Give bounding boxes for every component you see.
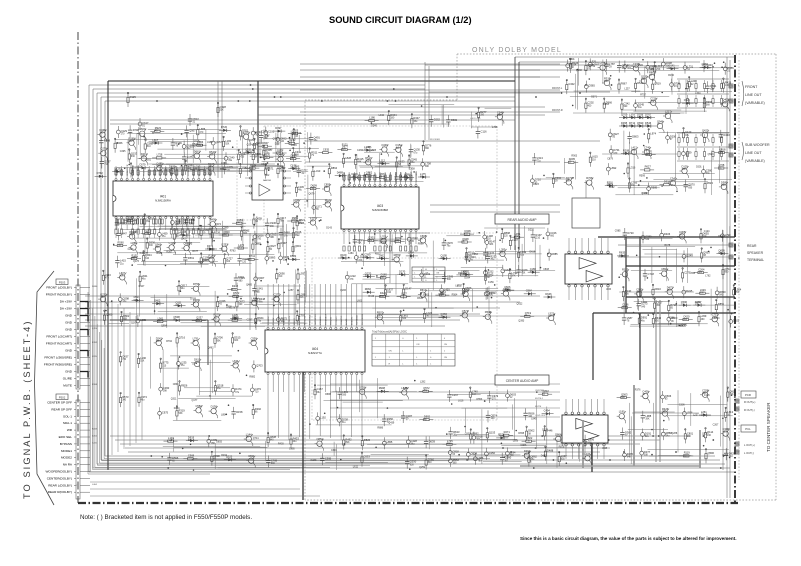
svg-text:82K: 82K xyxy=(234,340,239,342)
svg-text:95K: 95K xyxy=(211,443,216,445)
svg-text:C559: C559 xyxy=(251,337,258,341)
svg-text:C679: C679 xyxy=(139,163,146,167)
svg-text:L634: L634 xyxy=(233,359,239,363)
svg-text:GND: GND xyxy=(65,321,73,325)
svg-text:REAR: REAR xyxy=(747,244,757,248)
svg-text:FRONT R(SCART): FRONT R(SCART) xyxy=(46,342,72,346)
svg-text:L837: L837 xyxy=(387,287,393,291)
svg-text:D853: D853 xyxy=(472,253,478,256)
svg-text:Q473: Q473 xyxy=(488,291,495,295)
svg-text:L447: L447 xyxy=(121,231,127,235)
svg-text:C345: C345 xyxy=(670,177,677,181)
svg-text:C264: C264 xyxy=(698,267,705,271)
svg-text:D395: D395 xyxy=(621,121,628,125)
svg-text:FDFNDAN: FDFNDAN xyxy=(356,315,359,325)
svg-text:R862: R862 xyxy=(472,432,479,436)
svg-text:C859: C859 xyxy=(324,183,331,187)
svg-text:42K: 42K xyxy=(399,274,404,276)
svg-text:C338: C338 xyxy=(702,388,709,392)
svg-text:R146: R146 xyxy=(209,253,216,257)
svg-text:44K: 44K xyxy=(365,276,370,278)
svg-text:DA +29V: DA +29V xyxy=(60,300,73,304)
svg-text:P503: P503 xyxy=(59,281,66,285)
svg-text:L257: L257 xyxy=(624,88,630,91)
svg-text:Q691: Q691 xyxy=(295,244,302,248)
svg-text:C267: C267 xyxy=(713,423,719,426)
svg-text:C192: C192 xyxy=(268,130,275,134)
svg-text:51K: 51K xyxy=(703,236,708,238)
svg-text:LUILTC: LUILTC xyxy=(294,317,296,325)
svg-text:R426: R426 xyxy=(291,144,297,147)
svg-text:L862: L862 xyxy=(402,313,408,317)
svg-text:D158: D158 xyxy=(236,410,243,414)
svg-text:Q187: Q187 xyxy=(406,414,413,418)
svg-text:R878: R878 xyxy=(559,446,565,449)
svg-text:D257: D257 xyxy=(104,160,111,164)
svg-text:D826: D826 xyxy=(364,438,371,442)
svg-text:D102: D102 xyxy=(424,272,431,276)
svg-text:D493: D493 xyxy=(238,276,244,279)
svg-text:Q114: Q114 xyxy=(92,328,98,330)
svg-text:27K: 27K xyxy=(350,279,355,281)
svg-text:C495: C495 xyxy=(120,150,126,153)
svg-text:C589: C589 xyxy=(223,227,229,230)
svg-text:45K: 45K xyxy=(358,243,363,245)
svg-text:C221: C221 xyxy=(92,442,98,444)
svg-text:REAR R(DOLBY): REAR R(DOLBY) xyxy=(48,490,72,494)
svg-text:Q720: Q720 xyxy=(702,433,709,436)
svg-text:L175: L175 xyxy=(420,172,426,176)
svg-text:D543: D543 xyxy=(637,81,644,85)
svg-text:Q719: Q719 xyxy=(525,311,532,315)
svg-text:60K: 60K xyxy=(621,397,626,399)
svg-text:C838: C838 xyxy=(270,435,277,439)
svg-text:Q852: Q852 xyxy=(366,171,373,175)
svg-text:D603: D603 xyxy=(510,393,517,397)
svg-text:D532: D532 xyxy=(193,117,200,121)
svg-text:D760: D760 xyxy=(428,458,435,462)
svg-text:C237: C237 xyxy=(247,319,253,322)
svg-text:R524: R524 xyxy=(192,143,198,146)
svg-text:C933: C933 xyxy=(503,287,510,291)
svg-text:D525: D525 xyxy=(542,428,548,431)
svg-text:R821: R821 xyxy=(358,238,365,242)
svg-text:R113: R113 xyxy=(622,268,629,272)
svg-text:38K: 38K xyxy=(270,237,275,239)
svg-text:C328: C328 xyxy=(220,105,227,109)
svg-text:D616: D616 xyxy=(530,250,536,253)
svg-text:D658: D658 xyxy=(518,432,524,435)
svg-text:Q631: Q631 xyxy=(463,269,470,273)
svg-text:Q417: Q417 xyxy=(280,216,287,220)
svg-text:C406: C406 xyxy=(680,325,686,328)
svg-text:Q538: Q538 xyxy=(173,315,180,319)
svg-text:D922: D922 xyxy=(733,319,740,323)
svg-text:R155: R155 xyxy=(92,342,98,344)
svg-text:C838: C838 xyxy=(226,306,232,309)
svg-text:L787: L787 xyxy=(609,62,615,66)
svg-text:13: 13 xyxy=(76,371,78,373)
svg-text:4: 4 xyxy=(76,308,77,310)
svg-text:C222: C222 xyxy=(350,274,357,278)
svg-text:L587: L587 xyxy=(627,316,633,320)
svg-text:L582: L582 xyxy=(638,64,644,67)
svg-text:R712: R712 xyxy=(629,121,636,125)
svg-text:LINE OUT: LINE OUT xyxy=(745,93,762,97)
svg-text:C596: C596 xyxy=(681,300,688,304)
svg-text:Q690: Q690 xyxy=(637,121,644,125)
svg-text:TSGRU: TSGRU xyxy=(273,317,275,325)
svg-text:D143: D143 xyxy=(326,226,332,229)
svg-text:C818: C818 xyxy=(453,450,460,454)
svg-text:Q130: Q130 xyxy=(414,148,421,152)
svg-text:TOORLS: TOORLS xyxy=(336,316,338,325)
svg-text:Q809: Q809 xyxy=(718,248,725,252)
svg-text:13: 13 xyxy=(76,485,78,487)
svg-text:Q195: Q195 xyxy=(441,253,448,257)
svg-text:D992: D992 xyxy=(424,414,431,418)
svg-text:C995: C995 xyxy=(289,448,295,451)
svg-text:C159: C159 xyxy=(488,281,494,284)
svg-text:C936: C936 xyxy=(261,130,267,133)
svg-text:Q666: Q666 xyxy=(665,394,672,398)
svg-text:R666: R666 xyxy=(365,287,372,291)
svg-text:68K: 68K xyxy=(489,244,494,246)
svg-text:R998: R998 xyxy=(379,386,386,390)
svg-text:D655: D655 xyxy=(216,440,222,443)
svg-text:C611: C611 xyxy=(293,198,300,202)
svg-text:R828: R828 xyxy=(198,144,204,147)
svg-text:GND: GND xyxy=(65,349,73,353)
svg-text:23K: 23K xyxy=(220,110,225,112)
svg-text:(VARIABLE): (VARIABLE) xyxy=(745,101,765,105)
svg-text:C617: C617 xyxy=(656,301,663,305)
svg-text:SLBAO: SLBAO xyxy=(358,175,361,182)
svg-text:Q517: Q517 xyxy=(181,283,188,287)
svg-text:PCL: PCL xyxy=(745,427,751,431)
svg-text:C808: C808 xyxy=(543,268,549,271)
svg-text:D962: D962 xyxy=(453,458,460,462)
svg-text:51K: 51K xyxy=(140,361,145,363)
svg-text:C955: C955 xyxy=(128,215,135,219)
svg-text:C399: C399 xyxy=(364,253,371,257)
svg-text:CENTER(DOLBY): CENTER(DOLBY) xyxy=(47,476,72,480)
svg-text:88K: 88K xyxy=(700,293,705,295)
svg-text:D661: D661 xyxy=(194,149,201,153)
svg-text:R633: R633 xyxy=(453,430,460,434)
svg-text:94K: 94K xyxy=(237,223,242,225)
svg-text:C668: C668 xyxy=(420,234,427,238)
svg-text:D191: D191 xyxy=(645,432,652,436)
svg-text:C838: C838 xyxy=(261,163,267,166)
svg-text:D731: D731 xyxy=(674,82,681,86)
svg-text:Q485: Q485 xyxy=(246,284,253,287)
svg-text:C305: C305 xyxy=(679,230,686,234)
svg-text:C565: C565 xyxy=(636,287,643,291)
svg-text:D539: D539 xyxy=(250,163,257,167)
svg-text:R447: R447 xyxy=(414,116,421,120)
svg-text:7: 7 xyxy=(76,329,77,331)
svg-text:L802: L802 xyxy=(133,231,139,234)
svg-text:20K: 20K xyxy=(687,436,692,438)
svg-text:D515: D515 xyxy=(234,335,241,339)
svg-text:L963: L963 xyxy=(105,273,111,277)
svg-text:Q154: Q154 xyxy=(395,143,402,147)
svg-text:42K: 42K xyxy=(441,258,446,260)
svg-text:4: 4 xyxy=(76,423,77,425)
svg-text:Q301: Q301 xyxy=(368,235,375,239)
svg-text:Q153: Q153 xyxy=(489,430,496,434)
svg-text:D880: D880 xyxy=(92,286,98,288)
svg-text:R564: R564 xyxy=(452,293,458,296)
svg-text:Q596: Q596 xyxy=(708,451,715,455)
svg-text:D553: D553 xyxy=(477,398,483,401)
svg-text:R175: R175 xyxy=(665,244,671,247)
svg-text:GND: GND xyxy=(65,328,73,332)
svg-text:C692: C692 xyxy=(280,136,287,140)
svg-text:C601: C601 xyxy=(696,166,702,169)
svg-text:12K: 12K xyxy=(232,320,237,322)
svg-text:D165: D165 xyxy=(381,273,388,277)
svg-text:7: 7 xyxy=(76,444,77,446)
svg-text:L313: L313 xyxy=(315,169,321,173)
svg-text:D633: D633 xyxy=(398,160,405,164)
svg-text:R967: R967 xyxy=(621,82,628,86)
svg-text:Q553: Q553 xyxy=(187,163,194,167)
svg-text:R623: R623 xyxy=(533,183,539,186)
svg-text:D344: D344 xyxy=(390,113,397,117)
svg-text:L224: L224 xyxy=(641,301,647,304)
svg-text:Q418: Q418 xyxy=(719,147,726,151)
svg-text:Q255: Q255 xyxy=(722,454,729,457)
svg-text:Q437: Q437 xyxy=(181,237,188,240)
svg-text:C202: C202 xyxy=(588,101,595,105)
svg-text:R447: R447 xyxy=(139,285,145,288)
svg-text:D720: D720 xyxy=(627,231,634,235)
svg-text:D615: D615 xyxy=(194,358,201,362)
svg-text:NJM1150RA: NJM1150RA xyxy=(155,199,171,203)
svg-text:D245: D245 xyxy=(638,103,645,107)
svg-text:81K: 81K xyxy=(114,171,119,173)
svg-text:Q974: Q974 xyxy=(215,223,222,226)
svg-text:D573: D573 xyxy=(122,395,129,399)
svg-text:C280: C280 xyxy=(669,316,675,319)
svg-text:Q123: Q123 xyxy=(593,61,600,65)
svg-text:D240: D240 xyxy=(371,125,377,128)
svg-text:WOOFER(DOLBY): WOOFER(DOLBY) xyxy=(46,470,72,474)
svg-text:FRONT L(DOLBY): FRONT L(DOLBY) xyxy=(46,286,72,290)
svg-text:99K: 99K xyxy=(209,155,214,157)
svg-text:C395: C395 xyxy=(325,456,332,460)
svg-text:C916: C916 xyxy=(384,179,390,182)
svg-text:D710: D710 xyxy=(535,178,542,182)
svg-text:L988: L988 xyxy=(645,414,651,418)
svg-text:Q567: Q567 xyxy=(189,128,196,132)
svg-text:L945: L945 xyxy=(531,417,537,420)
svg-text:CENTER SP OFF: CENTER SP OFF xyxy=(47,401,72,405)
svg-text:D688: D688 xyxy=(175,219,182,223)
svg-text:Q741: Q741 xyxy=(253,437,260,440)
svg-text:L770: L770 xyxy=(646,149,652,153)
svg-text:SPEAKER: SPEAKER xyxy=(747,251,764,255)
svg-text:TERMINAL: TERMINAL xyxy=(747,258,764,262)
svg-text:NJM2177A: NJM2177A xyxy=(308,351,322,355)
svg-text:36K: 36K xyxy=(119,276,124,278)
svg-text:R255: R255 xyxy=(92,429,98,431)
svg-text:D704: D704 xyxy=(395,236,402,240)
svg-text:D594: D594 xyxy=(464,277,470,280)
svg-text:L438: L438 xyxy=(487,234,493,238)
svg-text:D264: D264 xyxy=(524,449,531,453)
svg-text:D208: D208 xyxy=(232,284,239,288)
svg-text:D365: D365 xyxy=(589,84,596,88)
svg-text:Q627: Q627 xyxy=(270,244,277,248)
svg-text:C973: C973 xyxy=(492,394,499,398)
svg-text:C609: C609 xyxy=(139,127,146,131)
svg-text:Q948: Q948 xyxy=(462,237,469,241)
svg-text:C549: C549 xyxy=(497,110,504,114)
svg-text:L615: L615 xyxy=(592,155,598,159)
svg-text:D893: D893 xyxy=(269,255,276,259)
svg-text:Q393: Q393 xyxy=(518,320,525,323)
svg-text:R485: R485 xyxy=(627,452,634,456)
svg-text:31K: 31K xyxy=(592,159,597,161)
svg-text:R415: R415 xyxy=(357,157,364,161)
svg-text:L438: L438 xyxy=(251,296,257,300)
svg-text:C864: C864 xyxy=(173,383,179,386)
svg-text:Q862: Q862 xyxy=(531,455,538,459)
svg-text:32K: 32K xyxy=(515,237,520,239)
svg-text:D411: D411 xyxy=(92,436,98,438)
svg-text:R627: R627 xyxy=(645,165,652,169)
svg-text:Q427: Q427 xyxy=(702,129,709,133)
svg-text:Q491: Q491 xyxy=(314,136,321,140)
svg-text:L251: L251 xyxy=(701,410,707,414)
svg-text:C650: C650 xyxy=(689,272,695,275)
svg-text:Q210: Q210 xyxy=(534,236,541,239)
svg-text:D776: D776 xyxy=(425,143,432,147)
svg-text:R664: R664 xyxy=(257,316,264,320)
svg-text:R661: R661 xyxy=(423,294,429,297)
svg-text:39K: 39K xyxy=(163,391,168,393)
svg-text:L585: L585 xyxy=(140,318,146,322)
svg-text:Q279: Q279 xyxy=(100,147,107,151)
svg-text:Q360: Q360 xyxy=(106,313,113,317)
svg-text:D997: D997 xyxy=(275,126,282,130)
svg-text:L144: L144 xyxy=(246,433,252,437)
svg-text:L345: L345 xyxy=(298,185,304,189)
svg-text:89K: 89K xyxy=(345,442,350,444)
svg-text:ONLY DOLBY MODEL: ONLY DOLBY MODEL xyxy=(472,47,562,54)
svg-text:L556: L556 xyxy=(687,411,693,415)
svg-text:D582: D582 xyxy=(290,254,297,258)
svg-text:L955: L955 xyxy=(207,141,213,144)
svg-text:64K: 64K xyxy=(129,235,134,237)
svg-text:NFTNAND: NFTNAND xyxy=(343,172,346,182)
svg-text:D572: D572 xyxy=(233,291,240,295)
svg-text:Q206: Q206 xyxy=(340,289,347,292)
svg-text:Q493: Q493 xyxy=(381,143,388,147)
svg-text:C326: C326 xyxy=(219,299,226,303)
svg-text:L257: L257 xyxy=(288,289,294,292)
svg-text:C748: C748 xyxy=(648,272,655,276)
svg-text:L104: L104 xyxy=(168,436,174,440)
svg-text:Q237: Q237 xyxy=(196,315,203,319)
svg-text:D270: D270 xyxy=(399,270,406,274)
svg-text:D717: D717 xyxy=(301,168,308,172)
svg-text:C275: C275 xyxy=(650,64,657,68)
svg-text:FTEARACS: FTEARACS xyxy=(324,313,327,325)
svg-text:R235: R235 xyxy=(490,254,497,258)
svg-text:D686: D686 xyxy=(325,393,331,396)
svg-text:R512: R512 xyxy=(375,252,381,255)
svg-text:L726: L726 xyxy=(492,126,498,129)
svg-text:Q409: Q409 xyxy=(722,98,729,102)
svg-text:Q659: Q659 xyxy=(256,217,263,221)
svg-text:D392: D392 xyxy=(255,407,262,411)
svg-text:D646: D646 xyxy=(545,292,552,296)
svg-text:L855: L855 xyxy=(387,440,393,444)
svg-text:Tr(a)/Tr(b)round(A)/SP(b) LOGI: Tr(a)/Tr(b)round(A)/SP(b) LOGIC xyxy=(372,331,407,334)
svg-text:R311: R311 xyxy=(627,64,634,68)
svg-text:C479: C479 xyxy=(255,387,262,391)
svg-text:MUTE: MUTE xyxy=(63,384,72,388)
svg-text:C582: C582 xyxy=(196,404,203,408)
svg-text:R635: R635 xyxy=(417,297,423,300)
svg-text:R403: R403 xyxy=(278,443,284,446)
svg-text:D242: D242 xyxy=(156,336,163,340)
svg-text:R119: R119 xyxy=(684,451,691,455)
svg-text:L412: L412 xyxy=(631,146,637,150)
svg-text:C305: C305 xyxy=(607,184,613,187)
svg-text:D377: D377 xyxy=(644,450,651,454)
svg-text:Q679: Q679 xyxy=(309,192,316,195)
svg-text:TSBGSRA: TSBGSRA xyxy=(309,314,312,325)
svg-text:R802: R802 xyxy=(123,314,130,318)
svg-text:P502: P502 xyxy=(59,396,66,400)
svg-text:L190: L190 xyxy=(140,356,146,360)
svg-text:D433: D433 xyxy=(723,133,730,137)
svg-text:R401: R401 xyxy=(569,58,575,61)
svg-text:R494: R494 xyxy=(221,454,227,457)
svg-text:R150: R150 xyxy=(668,74,674,77)
svg-text:L OUT(+): L OUT(+) xyxy=(744,443,755,447)
svg-text:L235: L235 xyxy=(181,361,187,365)
svg-text:L616: L616 xyxy=(458,400,464,403)
svg-text:19K: 19K xyxy=(325,203,330,205)
svg-text:R864: R864 xyxy=(331,166,338,170)
svg-text:C617: C617 xyxy=(505,268,512,272)
svg-text:L841: L841 xyxy=(142,274,148,278)
svg-text:94K: 94K xyxy=(627,457,632,459)
svg-text:L937: L937 xyxy=(300,272,306,276)
svg-text:L213: L213 xyxy=(195,165,201,169)
svg-text:R878: R878 xyxy=(394,253,401,257)
svg-text:L790: L790 xyxy=(725,233,731,237)
svg-text:R757: R757 xyxy=(640,94,646,97)
svg-text:53K: 53K xyxy=(179,413,184,415)
svg-text:Q844: Q844 xyxy=(145,253,152,257)
svg-text:R518: R518 xyxy=(604,77,611,81)
svg-text:C975: C975 xyxy=(162,410,169,414)
svg-text:SCOODNN: SCOODNN xyxy=(416,171,418,182)
svg-text:C436: C436 xyxy=(550,231,557,235)
svg-text:D991: D991 xyxy=(641,316,648,320)
svg-text:L701: L701 xyxy=(381,234,387,238)
svg-text:D610: D610 xyxy=(655,287,662,291)
svg-text:R903: R903 xyxy=(571,155,577,158)
svg-text:D885: D885 xyxy=(551,252,558,256)
